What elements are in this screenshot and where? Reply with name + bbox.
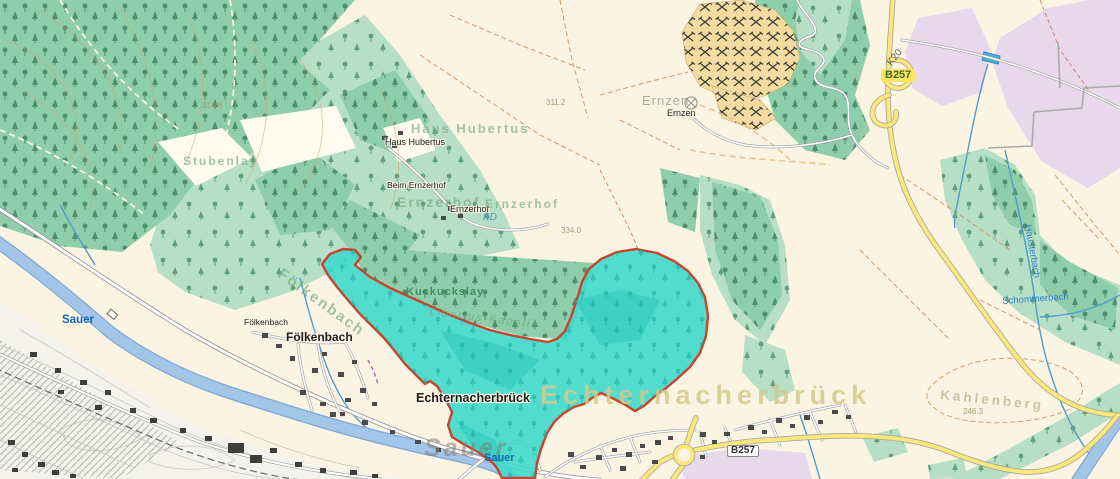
label-foelkenbach-small: Fölkenbach [244,318,288,327]
label-liborius-kapelle: Liborius-Kapelle [429,307,540,331]
label-elev-311: 311.2 [546,99,565,107]
label-stubenlay: Stubenlay [183,155,258,167]
label-elev-314: 314.6 [202,102,222,110]
label-sauer-ghost: Sauer [424,436,508,461]
label-shield-b257-top: B257 [881,69,915,82]
label-elev-334: 334.0 [561,227,581,235]
label-kd: KD [483,213,497,223]
label-ghost-ernzen: Ernzen [642,94,689,107]
label-ghost-ernzerhof-west: Ernzerhof [397,195,480,209]
label-ghost-echternacherbrueck: Echternacherbrück [540,382,871,409]
label-ernzerhof: Ernzerhof [450,205,489,214]
label-k20: K20 [886,48,905,68]
label-sauer-blue-1: Sauer [484,453,515,464]
label-ernzen: Ernzen [667,109,696,118]
label-foelkenbach: Fölkenbach [286,331,353,343]
label-hausterbach: Hausterbach [1023,224,1042,279]
label-kuckuckslay: Kuckuckslay [406,287,484,298]
label-elev-246: 246.3 [963,408,983,416]
label-sauer-blue-2: Sauer [62,315,94,327]
label-ghost-haus-hubertus: Haus Hubertus [411,122,529,135]
label-ghost-foelkenbach: Fölkenbach [275,266,367,339]
map-canvas[interactable]: Haus HubertusHaus HubertusBeim Ernzerhof… [0,0,1120,479]
label-kahlenberg: Kahlenberg [940,388,1045,412]
label-schommerbach: Schommerbach [1002,292,1069,306]
label-beim-ernzerhof: Beim Ernzerhof [387,181,446,190]
label-echternacherbrueck: Echternacherbrück [416,392,530,405]
label-shield-b257-bottom: B257 [727,445,759,457]
label-layer: Haus HubertusHaus HubertusBeim Ernzerhof… [0,0,1120,479]
label-haus-hubertus: Haus Hubertus [385,138,445,147]
label-ghost-ernzerhof-east: Ernzerhof [485,198,559,210]
